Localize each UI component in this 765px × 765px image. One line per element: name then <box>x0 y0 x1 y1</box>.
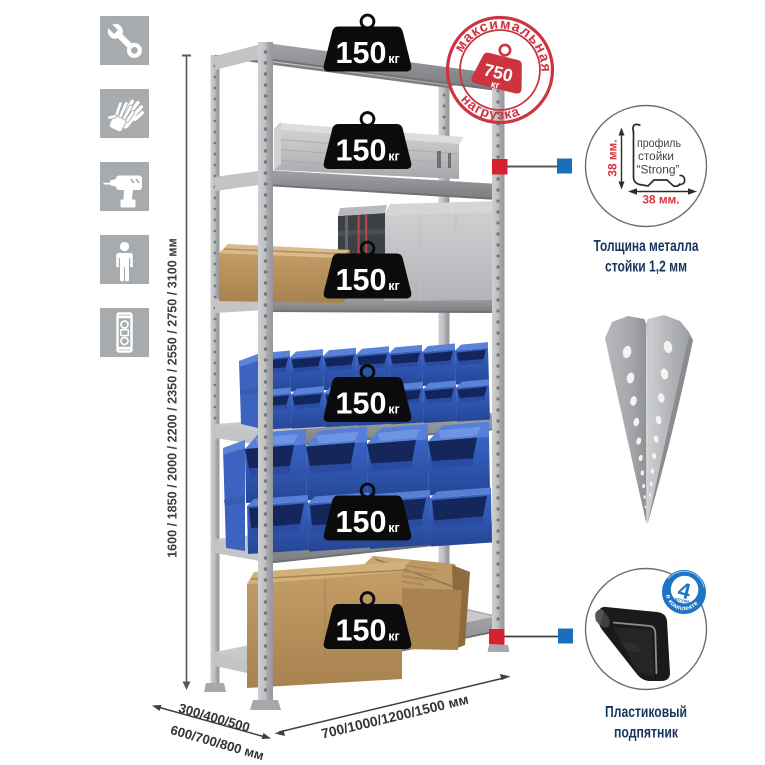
svg-text:стойки: стойки <box>638 149 674 163</box>
svg-text:“Strong”: “Strong” <box>637 163 680 177</box>
svg-text:подпятник: подпятник <box>614 725 679 742</box>
svg-text:профиль: профиль <box>637 136 681 150</box>
svg-text:38 мм.: 38 мм. <box>642 193 679 207</box>
svg-text:1600 / 1850 / 2000 / 2200 / 23: 1600 / 1850 / 2000 / 2200 / 2350 / 2550 … <box>166 238 180 558</box>
svg-text:Толщина металла: Толщина металла <box>594 238 699 255</box>
svg-text:38 мм.: 38 мм. <box>606 139 620 176</box>
svg-text:стойки 1,2 мм: стойки 1,2 мм <box>605 259 687 276</box>
svg-text:Пластиковый: Пластиковый <box>605 704 687 721</box>
